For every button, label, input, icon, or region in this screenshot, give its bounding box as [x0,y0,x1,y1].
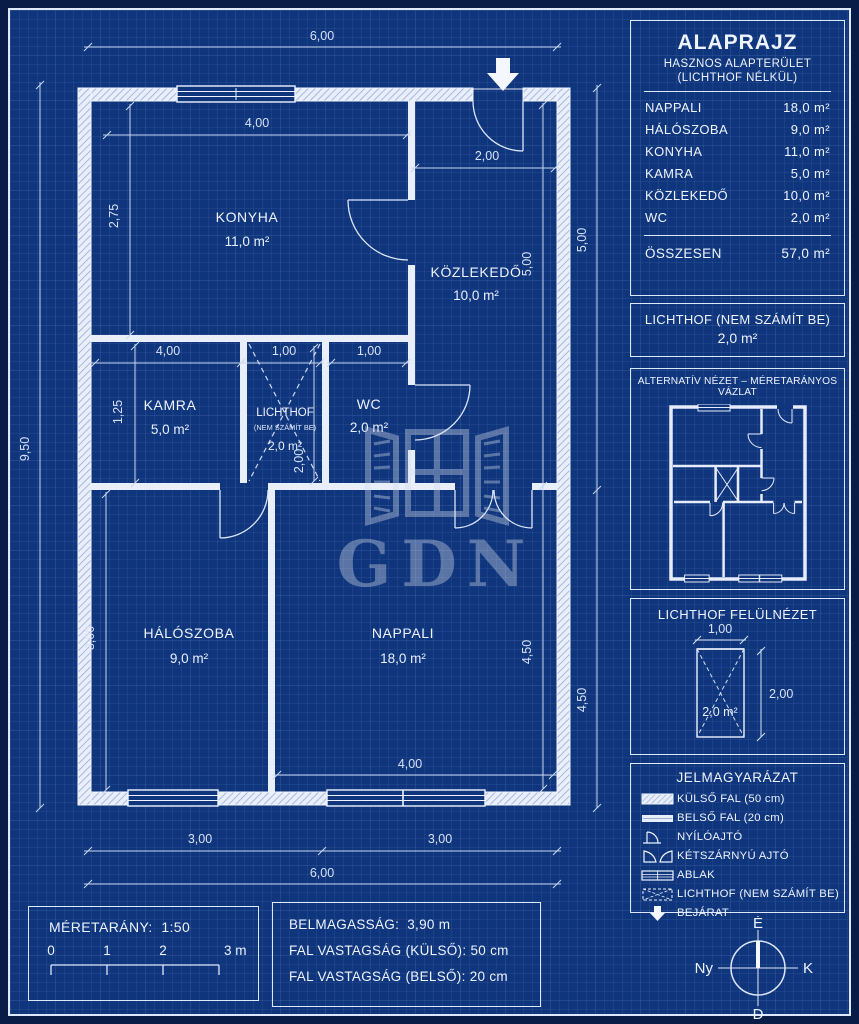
scale-panel: MÉRETARÁNY: 1:50 0 1 2 3 m [28,906,259,1001]
legend-item: BELSŐ FAL (20 cm) [631,808,844,827]
scale-label-row: MÉRETARÁNY: 1:50 [49,919,258,935]
room-area-kozlekedo: 10,0 m² [453,288,499,303]
summary-total-label: ÖSSZESEN [645,243,722,265]
window-icon [639,867,677,883]
dimension-lines [36,43,601,888]
summary-row: NAPPALI18,0 m² [631,97,844,119]
entrance-arrow-icon [487,58,519,91]
room-area-haloszoba: 9,0 m² [170,651,209,666]
dim-right-upper: 5,00 [575,228,589,252]
lichthof-topview-width: 1,00 [708,622,732,636]
lichthof-note-line1: LICHTHOF (NEM SZÁMÍT BE) [631,312,844,327]
dim-konyha-h: 2,75 [107,204,121,228]
compass-south: D [753,1006,764,1020]
dim-kozlekedo-h: 5,00 [520,252,534,276]
dim-right-lower: 4,50 [575,688,589,712]
compass-north: É [753,916,763,932]
lichthof-icon [639,886,677,902]
floor-plan-drawing: 6,00 4,00 2,00 4,00 1,00 1,00 4,00 3,00 … [0,0,630,900]
scale-label: MÉRETARÁNY: [49,919,153,935]
alt-view-panel: ALTERNATÍV NÉZET – MÉRETARÁNYOS VÁZLAT [630,368,845,590]
exterior-wall-icon [639,791,677,807]
legend-item: NYÍLÓAJTÓ [631,827,844,846]
alt-view-caption: ALTERNATÍV NÉZET – MÉRETARÁNYOS VÁZLAT [631,376,844,398]
summary-panel: ALAPRAJZ HASZNOS ALAPTERÜLET (LICHTHOF N… [630,20,845,296]
legend-item: ABLAK [631,865,844,884]
legend-item: KÜLSŐ FAL (50 cm) [631,789,844,808]
room-label-haloszoba: HÁLÓSZOBA [144,625,235,641]
room-label-kamra: KAMRA [144,397,197,413]
lichthof-topview-title: LICHTHOF FELÜLNÉZET [631,607,844,622]
room-area-lichthof: 2,0 m² [268,439,302,453]
legend-title: JELMAGYARÁZAT [631,770,844,785]
room-label-wc: WC [357,396,382,412]
svg-text:1: 1 [103,943,111,958]
room-label-konyha: KONYHA [216,209,279,225]
legend-item: KÉTSZÁRNYÚ AJTÓ [631,846,844,865]
compass-west: Ny [695,960,714,977]
room-label-lichthof: LICHTHOF [256,407,314,419]
summary-total-value: 57,0 m² [781,243,830,265]
dim-nappali-w: 4,00 [398,757,422,771]
summary-total-row: ÖSSZESEN 57,0 m² [631,243,844,265]
info-row: BELMAGASSÁG: 3,90 m [289,917,524,932]
legend-panel: JELMAGYARÁZAT KÜLSŐ FAL (50 cm) BELSŐ FA… [630,763,845,913]
scale-bar: 0 1 2 3 m [36,939,251,981]
lichthof-note-panel: LICHTHOF (NEM SZÁMÍT BE) 2,0 m² [630,303,845,357]
dim-haloszoba-h: 3,00 [83,626,97,650]
room-area-nappali: 18,0 m² [380,651,426,666]
summary-subtitle2: (LICHTHOF NÉLKÜL) [631,72,844,84]
double-door-icon [639,847,677,865]
summary-row: KAMRA5,0 m² [631,163,844,185]
blueprint-page: 6,00 4,00 2,00 4,00 1,00 1,00 4,00 3,00 … [0,0,859,1024]
room-area-konyha: 11,0 m² [225,234,270,249]
single-door-icon [639,828,677,846]
summary-row: HÁLÓSZOBA9,0 m² [631,119,844,141]
summary-title: ALAPRAJZ [631,31,844,55]
window-symbols [128,86,485,806]
entrance-legend-arrow-icon [639,904,677,922]
dim-bottom-total: 6,00 [310,866,334,880]
legend-item: LICHTHOF (NEM SZÁMÍT BE) [631,884,844,903]
info-row: FAL VASTAGSÁG (KÜLSŐ): 50 cm [289,943,524,958]
room-label-nappali: NAPPALI [372,625,434,641]
dim-kamra-w: 4,00 [156,344,180,358]
wall-info-panel: BELMAGASSÁG: 3,90 m FAL VASTAGSÁG (KÜLSŐ… [272,902,541,1007]
lichthof-topview-area: 2,0 m² [702,705,737,719]
room-note-lichthof: (NEM SZÁMÍT BE) [254,423,316,432]
interior-walls [91,101,557,792]
lichthof-topview-panel: LICHTHOF FELÜLNÉZET 1,00 2,00 2,0 m² [630,598,845,755]
dim-top-total: 6,00 [310,29,334,43]
compass-east: K [803,960,813,977]
summary-row: KÖZLEKEDŐ10,0 m² [631,185,844,207]
lichthof-topview-height: 2,00 [769,687,793,701]
dim-bottom-right: 3,00 [428,832,452,846]
dim-wc-w: 1,00 [357,344,381,358]
alt-view-miniplan [668,404,808,584]
info-row: FAL VASTAGSÁG (BELSŐ): 20 cm [289,969,524,984]
dim-kamra-h: 1,25 [111,400,125,424]
compass: É Ny K D [688,916,845,1020]
dim-konyha-w: 4,00 [245,116,269,130]
interior-wall-icon [639,810,677,826]
svg-text:3 m: 3 m [224,943,247,958]
dim-nappali-h: 4,50 [520,640,534,664]
summary-row: WC2,0 m² [631,207,844,229]
summary-subtitle1: HASZNOS ALAPTERÜLET [631,58,844,70]
dim-left-total: 9,50 [18,437,32,461]
door-swings [220,101,532,538]
room-area-kamra: 5,0 m² [151,422,190,437]
lichthof-topview-drawing: 1,00 2,00 2,0 m² [631,622,842,747]
room-label-kozlekedo: KÖZLEKEDŐ [431,263,522,280]
svg-text:0: 0 [47,943,55,958]
dim-bottom-left: 3,00 [188,832,212,846]
summary-row: KONYHA11,0 m² [631,141,844,163]
scale-value: 1:50 [161,919,190,935]
svg-text:2: 2 [159,943,167,958]
room-area-wc: 2,0 m² [350,420,389,435]
dim-entrance-w: 2,00 [475,149,499,163]
dim-lichthof-w: 1,00 [272,344,296,358]
lichthof-note-line2: 2,0 m² [631,330,844,346]
